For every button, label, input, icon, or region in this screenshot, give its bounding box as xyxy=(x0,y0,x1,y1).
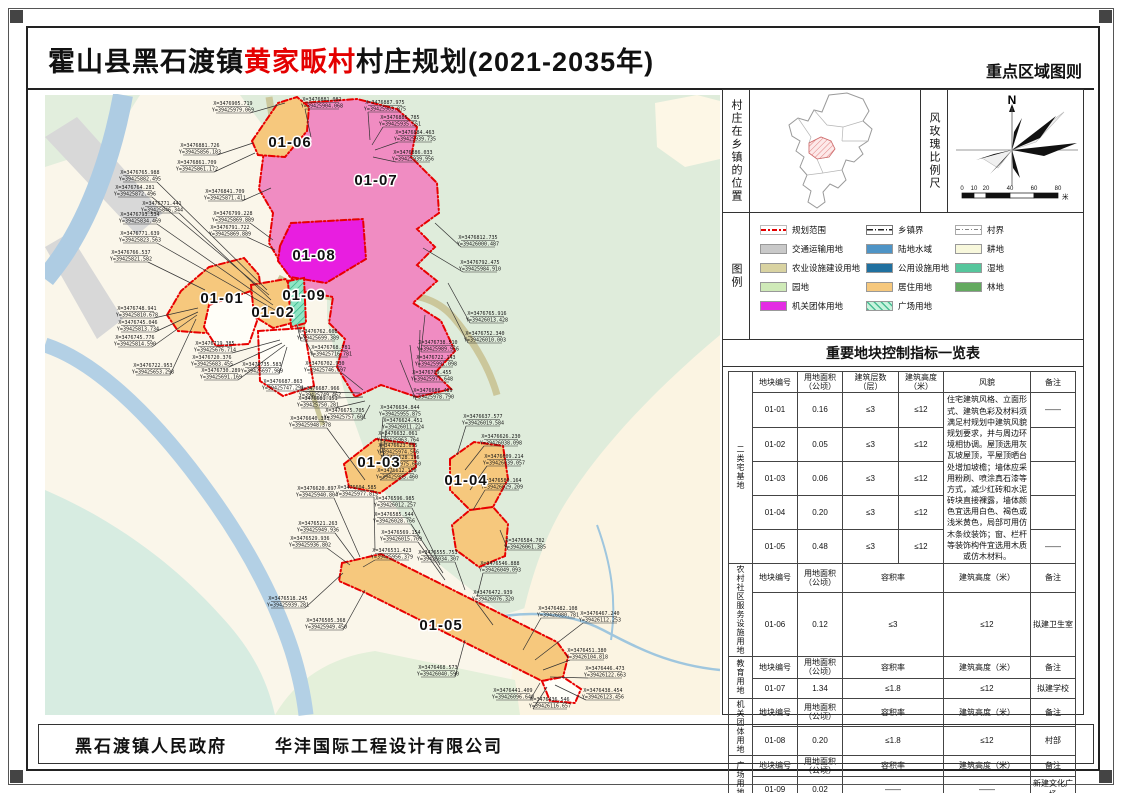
legend-swatch-fill xyxy=(760,244,787,254)
coord-label-x: X=3476518.245 xyxy=(268,596,307,602)
coord-label-y: Y=39426019.584 xyxy=(462,421,504,427)
scale-tick-label: 80 xyxy=(1055,186,1062,192)
legend-label: 湿地 xyxy=(987,262,1004,274)
coord-label-x: X=3476482.108 xyxy=(538,606,577,612)
coord-label-y: Y=39426076.320 xyxy=(472,597,514,603)
legend-label: 农业设施建设用地 xyxy=(792,262,860,274)
column-header: 容积率 xyxy=(843,657,944,678)
legend-item: 林地 xyxy=(955,280,1004,293)
corner-mark xyxy=(1099,770,1112,783)
legend-item: 耕地 xyxy=(955,242,1004,255)
column-header: 用地面积（公顷） xyxy=(798,698,843,727)
coord-label-x: X=3476762.608 xyxy=(298,329,337,335)
column-header: 建筑高度（米） xyxy=(899,372,944,393)
spec-table-title: 重要地块控制指标一览表 xyxy=(723,340,1083,367)
coord-label-x: X=3476585.544 xyxy=(374,512,413,518)
plot-area: 0.05 xyxy=(798,427,843,461)
plot-id: 01-06 xyxy=(753,592,798,656)
coord-label-y: Y=39426038.098 xyxy=(480,441,522,447)
scale-unit-label: 米 xyxy=(1062,192,1069,201)
coord-label-y: Y=39425935.551 xyxy=(379,122,421,128)
legend-label: 机关团体用地 xyxy=(792,300,843,312)
coord-label-y: Y=39426104.818 xyxy=(566,655,608,661)
plot-far: —— xyxy=(843,776,944,793)
coord-label-y: Y=39425949.936 xyxy=(297,528,339,534)
coord-label-x: X=3476472.939 xyxy=(473,590,512,596)
parcel-id-label-01-09: 01-09 xyxy=(282,287,325,304)
column-header: 用地面积（公顷） xyxy=(798,372,843,393)
legend-swatch-fill xyxy=(955,282,982,292)
windrose-figure: N 01020406080米 xyxy=(948,90,1084,212)
legend-label: 规划范围 xyxy=(792,224,826,236)
coord-label-y: Y=39426112.253 xyxy=(579,618,621,624)
coord-label-x: X=3476637.577 xyxy=(463,414,502,420)
coord-label-y: Y=39425989.956 xyxy=(417,347,459,353)
plot-height: ≤12 xyxy=(899,461,944,495)
coord-label-x: X=3476745.776 xyxy=(115,335,154,341)
coord-label-y: Y=39426122.663 xyxy=(584,673,626,679)
coord-label-y: Y=39425869.889 xyxy=(209,232,251,238)
coord-label-x: X=3476768.781 xyxy=(311,345,350,351)
coord-label-y: Y=39426010.003 xyxy=(464,338,506,344)
legend-box: 图例 规划范围交通运输用地农业设施建设用地园地机关团体用地乡镇界陆地水域公用设施… xyxy=(722,212,1084,340)
coord-label-y: Y=39425814.590 xyxy=(114,342,156,348)
column-header: 建筑层数（层） xyxy=(843,372,899,393)
parcel-id-label-01-03: 01-03 xyxy=(357,454,400,471)
plot-floors: ≤3 xyxy=(843,393,899,427)
coord-label-y: Y=39425956.379 xyxy=(371,555,413,561)
footer-block: 黑石渡镇人民政府 华沣国际工程设计有限公司 xyxy=(38,724,1094,764)
coord-label-x: X=3476531.423 xyxy=(372,548,411,554)
scale-tick-label: 40 xyxy=(1007,186,1014,192)
corner-mark xyxy=(10,770,23,783)
plot-note: 拟建学校 xyxy=(1031,678,1076,698)
coord-label-y: Y=39425757.601 xyxy=(324,415,366,421)
coord-label-y: Y=39425821.582 xyxy=(110,257,152,263)
column-header: 风貌 xyxy=(944,372,1031,393)
coord-label-y: Y=39425949.450 xyxy=(305,625,347,631)
scale-bar-segment xyxy=(1034,193,1058,198)
legend-box-label: 图例 xyxy=(723,213,750,339)
plot-note: 拟建卫生室 xyxy=(1031,592,1076,656)
coord-label-y: Y=39425746.697 xyxy=(304,368,346,374)
legend-item: 交通运输用地 xyxy=(760,242,860,255)
coord-label-x: X=3476887.975 xyxy=(365,100,404,106)
plot-area: 0.12 xyxy=(798,592,843,656)
plot-height: ≤12 xyxy=(899,393,944,427)
coord-label-x: X=3476438.454 xyxy=(583,688,622,694)
scale-bar: 01020406080米 xyxy=(960,186,1069,201)
style-guideline: 住宅建筑风格、立面形式、建筑色彩及材料须满足村规划中建筑风貌规划要求，并与周边环… xyxy=(944,393,1031,564)
legend-swatch-line-town xyxy=(866,225,893,235)
coord-label-y: Y=39425955.875 xyxy=(379,412,421,418)
parcel-id-label-01-08: 01-08 xyxy=(292,247,335,264)
group-label: 教育用地 xyxy=(729,657,753,698)
coord-label-y: Y=39425991.098 xyxy=(415,362,457,368)
coord-label-x: X=3476505.368 xyxy=(306,618,345,624)
legend-column: 规划范围交通运输用地农业设施建设用地园地机关团体用地 xyxy=(760,223,860,335)
scale-bar-segment xyxy=(986,193,1010,198)
location-box-label: 村庄在乡镇的位置 xyxy=(723,90,750,212)
coord-label-x: X=3476687.863 xyxy=(263,379,302,385)
coord-label-x: X=3476765.916 xyxy=(467,311,506,317)
coord-label-y: Y=39425936.802 xyxy=(289,543,331,549)
corner-mark xyxy=(1099,10,1112,23)
coord-label-x: X=3476709.455 xyxy=(412,370,451,376)
legend-label: 交通运输用地 xyxy=(792,243,843,255)
plot-far: ≤3 xyxy=(843,592,944,656)
coord-label-x: X=3476771.441 xyxy=(142,201,181,207)
coord-label-x: X=3476765.988 xyxy=(120,170,159,176)
coord-label-y: Y=39425984.910 xyxy=(459,267,501,273)
plot-area: 0.16 xyxy=(798,393,843,427)
coord-label-y: Y=39425977.819 xyxy=(336,492,378,498)
coord-label-y: Y=39426049.093 xyxy=(479,568,521,574)
coord-label-x: X=3476702.930 xyxy=(305,361,344,367)
page-title: 霍山县黑石渡镇黄家畈村村庄规划(2021-2035年) xyxy=(48,40,654,79)
legend-label: 居住用地 xyxy=(898,281,932,293)
coord-label-x: X=3476885.785 xyxy=(380,115,419,121)
plot-id: 01-02 xyxy=(753,427,798,461)
plot-height: ≤12 xyxy=(944,678,1031,698)
windrose-petal xyxy=(1012,150,1020,178)
windrose-box-label: 风玫瑰比例尺 xyxy=(920,90,947,212)
plot-note: —— xyxy=(1031,393,1076,427)
coord-label-y: Y=39425978.790 xyxy=(412,395,454,401)
coord-label-x: X=3476791.722 xyxy=(210,225,249,231)
coord-label-y: Y=39426015.709 xyxy=(380,537,422,543)
legend-swatch-fill xyxy=(866,282,893,292)
plot-area: 0.48 xyxy=(798,530,843,564)
coord-label-y: Y=39426011.224 xyxy=(382,425,424,431)
coord-label-x: X=3476730.289 xyxy=(201,368,240,374)
coord-label-y: Y=39426123.456 xyxy=(582,695,624,701)
coord-label-y: Y=39426000.487 xyxy=(457,242,499,248)
coord-label-y: Y=39425699.389 xyxy=(297,336,339,342)
side-panel: 村庄在乡镇的位置 风玫瑰比例尺 N xyxy=(722,90,1084,715)
coord-label-x: X=3476722.953 xyxy=(133,363,172,369)
column-header: 建筑高度（米） xyxy=(944,698,1031,727)
coord-label-x: X=3476793.534 xyxy=(120,212,159,218)
windrose: N 01020406080米 xyxy=(947,90,1083,212)
legend-column: 乡镇界陆地水域公用设施用地居住用地广场用地 xyxy=(866,223,949,335)
coord-label-x: X=3476468.573 xyxy=(418,665,457,671)
plot-far: ≤1.8 xyxy=(843,678,944,698)
plot-height: ≤12 xyxy=(899,530,944,564)
coord-label-y: Y=39425979.069 xyxy=(212,108,254,114)
coord-label-y: Y=39425676.714 xyxy=(194,348,236,354)
legend-label: 陆地水域 xyxy=(898,243,932,255)
column-header: 地块编号 xyxy=(753,564,798,593)
coord-label-y: Y=39426096.640 xyxy=(492,695,534,701)
plot-area: 1.34 xyxy=(798,678,843,698)
coord-label-y: Y=39425861.172 xyxy=(176,167,218,173)
coord-label-y: Y=39426013.428 xyxy=(466,318,508,324)
coord-label-x: X=3476681.151 xyxy=(298,396,337,402)
title-block: 霍山县黑石渡镇黄家畈村村庄规划(2021-2035年) 重点区域图则 xyxy=(28,28,1094,90)
plot-id: 01-04 xyxy=(753,495,798,529)
coord-label-y: Y=39425871.411 xyxy=(204,196,246,202)
parcel-id-label-01-06: 01-06 xyxy=(268,134,311,151)
parcel-id-label-01-01: 01-01 xyxy=(200,290,243,307)
legend-item: 陆地水域 xyxy=(866,242,949,255)
coord-label-x: X=3476623.695 xyxy=(378,443,417,449)
coord-label-y: Y=39425691.169 xyxy=(200,375,242,381)
windrose-petal-outline xyxy=(982,150,1012,168)
legend-item: 农业设施建设用地 xyxy=(760,261,860,274)
coord-label-x: X=3476589.164 xyxy=(482,478,521,484)
coord-label-x: X=3476792.475 xyxy=(460,260,499,266)
coord-label-y: Y=39426039.057 xyxy=(483,461,525,467)
scale-tick-label: 10 xyxy=(971,186,978,192)
legend-label: 乡镇界 xyxy=(898,224,924,236)
column-header: 容积率 xyxy=(843,564,944,593)
sheet-type-label: 重点区域图则 xyxy=(986,58,1082,82)
coord-label-x: X=3476766.537 xyxy=(111,250,150,256)
legend-swatch-fill xyxy=(866,263,893,273)
coord-label-y: Y=39425948.378 xyxy=(289,423,331,429)
parcel-id-label-01-02: 01-02 xyxy=(251,304,294,321)
coord-label-x: X=3476634.844 xyxy=(380,405,419,411)
coord-label-y: Y=39425810.678 xyxy=(116,313,158,319)
legend-label: 林地 xyxy=(987,281,1004,293)
legend-item: 园地 xyxy=(760,280,860,293)
legend-swatch-fill xyxy=(760,263,787,273)
coord-label-y: Y=39425823.563 xyxy=(119,238,161,244)
coord-label-x: X=3476626.230 xyxy=(481,434,520,440)
coord-label-x: X=3476841.709 xyxy=(205,189,244,195)
coord-label-y: Y=39426012.257 xyxy=(374,503,416,509)
plot-id: 01-03 xyxy=(753,461,798,495)
column-header: 地块编号 xyxy=(753,698,798,727)
coord-label-x: X=3476584.702 xyxy=(505,538,544,544)
coord-label-y: Y=39425939.735 xyxy=(394,137,436,143)
coord-label-y: Y=39426034.307 xyxy=(417,557,459,563)
coord-label-x: X=3476441.409 xyxy=(493,688,532,694)
coord-label-y: Y=39426040.590 xyxy=(417,672,459,678)
spec-table-box: 重要地块控制指标一览表 二类宅基地地块编号用地面积（公顷）建筑层数（层）建筑高度… xyxy=(722,339,1084,715)
scale-tick-label: 20 xyxy=(983,186,990,192)
coord-label-y: Y=39425747.291 xyxy=(262,386,304,392)
plot-height: ≤12 xyxy=(899,427,944,461)
coord-label-x: X=3476861.709 xyxy=(177,160,216,166)
legend-item: 居住用地 xyxy=(866,280,949,293)
coord-label-y: Y=39425716.781 xyxy=(310,352,352,358)
coord-label-x: X=3476745.046 xyxy=(118,320,157,326)
column-header: 备注 xyxy=(1031,698,1076,727)
coord-label-y: Y=39425882.495 xyxy=(119,177,161,183)
plot-id: 01-07 xyxy=(753,678,798,698)
coord-label-x: X=3476764.281 xyxy=(115,185,154,191)
government-name: 黑石渡镇人民政府 xyxy=(75,732,227,757)
township-inset-map xyxy=(750,90,920,212)
coord-label-x: X=3476720.376 xyxy=(192,355,231,361)
coord-label-x: X=3476521.263 xyxy=(298,521,337,527)
coord-label-y: Y=39426080.781 xyxy=(537,613,579,619)
coord-label-x: X=3476555.753 xyxy=(418,550,457,556)
column-header: 地块编号 xyxy=(753,657,798,678)
plot-id: 01-01 xyxy=(753,393,798,427)
column-header: 地块编号 xyxy=(753,372,798,393)
coord-label-x: X=3476686.489 xyxy=(413,388,452,394)
scale-bar-segment xyxy=(974,193,986,198)
legend-label: 广场用地 xyxy=(898,300,932,312)
plot-floors: ≤3 xyxy=(843,530,899,564)
coord-label-x: X=3476884.463 xyxy=(395,130,434,136)
legend-label: 耕地 xyxy=(987,243,1004,255)
coord-label-x: X=3476546.888 xyxy=(480,561,519,567)
plot-floors: ≤3 xyxy=(843,427,899,461)
coord-label-x: X=3476446.473 xyxy=(585,666,624,672)
parcel-id-label-01-07: 01-07 xyxy=(354,172,397,189)
scale-bar-segment xyxy=(962,193,974,198)
coord-label-x: X=3476752.340 xyxy=(465,331,504,337)
legend-item: 村界 xyxy=(955,223,1004,236)
coord-label-y: Y=39425813.734 xyxy=(117,327,159,333)
plot-id: 01-05 xyxy=(753,530,798,564)
legend-item: 乡镇界 xyxy=(866,223,949,236)
coord-label-x: X=3476436.546 xyxy=(530,697,569,703)
village-name: 黄家畈村 xyxy=(244,47,356,77)
coord-label-y: Y=39425940.804 xyxy=(296,493,338,499)
corner-mark xyxy=(10,10,23,23)
column-header: 容积率 xyxy=(843,698,944,727)
coord-label-y: Y=39425697.989 xyxy=(241,369,283,375)
plot-id: 01-09 xyxy=(753,776,798,793)
coord-label-x: X=3476624.451 xyxy=(383,418,422,424)
coord-label-y: Y=39425939.956 xyxy=(392,157,434,163)
coord-label-x: X=3476722.143 xyxy=(416,355,455,361)
scale-bar-segment xyxy=(1010,193,1034,198)
plot-floors: ≤3 xyxy=(843,495,899,529)
coord-label-y: Y=39426116.657 xyxy=(529,704,571,710)
coord-label-x: X=3476632.061 xyxy=(378,431,417,437)
coord-label-y: Y=39425856.183 xyxy=(179,150,221,156)
coord-label-x: X=3476604.585 xyxy=(337,485,376,491)
legend-item: 机关团体用地 xyxy=(760,299,860,312)
parcel-id-label-01-05: 01-05 xyxy=(419,617,462,634)
coord-label-x: X=3476569.154 xyxy=(381,530,420,536)
coord-label-y: Y=39425939.281 xyxy=(267,603,309,609)
coord-label-x: X=3476640.395 xyxy=(290,416,329,422)
coord-label-x: X=3476675.705 xyxy=(325,408,364,414)
plan-sheet: 霍山县黑石渡镇黄家畈村村庄规划(2021-2035年) 重点区域图则 xyxy=(0,0,1122,793)
legend-swatch-fill xyxy=(760,301,787,311)
legend-swatch-line-village xyxy=(955,225,982,235)
plot-note: 新建文化广场 xyxy=(1031,776,1076,793)
coord-label-y: Y=39425653.298 xyxy=(132,370,174,376)
coord-label-x: X=3476771.639 xyxy=(120,231,159,237)
legend-item: 公用设施用地 xyxy=(866,261,949,274)
coord-label-x: X=3476609.214 xyxy=(484,454,523,460)
coord-label-y: Y=39425872.496 xyxy=(114,192,156,198)
coord-label-y: Y=39425904.068 xyxy=(301,104,343,110)
legend-label: 公用设施用地 xyxy=(898,262,949,274)
plot-note xyxy=(1031,461,1076,495)
coord-label-x: X=3476812.735 xyxy=(458,235,497,241)
coord-label-y: Y=39425683.455 xyxy=(191,362,233,368)
plot-height: ≤12 xyxy=(899,495,944,529)
legend-label: 园地 xyxy=(792,281,809,293)
legend-swatch-fill xyxy=(955,244,982,254)
legend-swatch-fill xyxy=(866,244,893,254)
coord-label-x: X=3476881.726 xyxy=(180,143,219,149)
plot-height: ≤12 xyxy=(944,592,1031,656)
coord-label-x: X=3476620.897 xyxy=(297,486,336,492)
plot-area: 0.20 xyxy=(798,495,843,529)
plot-height: —— xyxy=(944,776,1031,793)
legend-swatch-line-red xyxy=(760,225,787,235)
group-label: 农村社区服务设施用地 xyxy=(729,564,753,657)
column-header: 建筑高度（米） xyxy=(944,657,1031,678)
parcel-id-label-01-04: 01-04 xyxy=(444,472,487,489)
location-box: 村庄在乡镇的位置 风玫瑰比例尺 N xyxy=(722,89,1084,213)
coord-label-x: X=3476451.380 xyxy=(567,648,606,654)
legend-swatch-hatch xyxy=(866,301,893,311)
coord-label-y: Y=39426028.766 xyxy=(373,519,415,525)
column-header: 用地面积（公顷） xyxy=(798,564,843,593)
coord-label-y: Y=39425869.889 xyxy=(212,218,254,224)
design-company-name: 华沣国际工程设计有限公司 xyxy=(275,732,503,757)
township-outline xyxy=(751,91,919,211)
column-header: 用地面积（公顷） xyxy=(798,657,843,678)
coord-label-x: X=3476799.228 xyxy=(213,211,252,217)
plot-note: —— xyxy=(1031,530,1076,564)
group-label: 二类宅基地 xyxy=(729,372,753,564)
plot-area: 0.02 xyxy=(798,776,843,793)
coord-label-y: Y=39425903.875 xyxy=(364,107,406,113)
plot-note xyxy=(1031,495,1076,529)
coord-label-x: X=3476886.033 xyxy=(393,150,432,156)
legend-swatch-fill xyxy=(955,263,982,273)
coord-label-x: X=3476467.240 xyxy=(580,611,619,617)
coord-label-y: Y=39425977.648 xyxy=(411,377,453,383)
coord-label-x: X=3476735.583 xyxy=(242,362,281,368)
coord-label-x: X=3476881.082 xyxy=(302,97,341,103)
map-canvas: X=3476905.719Y=39425979.069X=3476881.726… xyxy=(45,94,720,716)
legend-item: 规划范围 xyxy=(760,223,860,236)
coord-label-x: X=3476748.941 xyxy=(117,306,156,312)
plot-floors: ≤3 xyxy=(843,461,899,495)
scale-tick-label: 0 xyxy=(960,186,964,192)
column-header: 备注 xyxy=(1031,372,1076,393)
legend-item: 广场用地 xyxy=(866,299,949,312)
coord-label-x: X=3476687.966 xyxy=(300,386,339,392)
coord-label-x: X=3476719.385 xyxy=(195,341,234,347)
coord-label-x: X=3476738.510 xyxy=(418,340,457,346)
coord-label-x: X=3476905.719 xyxy=(213,101,252,107)
plot-area: 0.06 xyxy=(798,461,843,495)
coord-label-x: X=3476596.985 xyxy=(375,496,414,502)
plot-note xyxy=(1031,427,1076,461)
column-header: 备注 xyxy=(1031,657,1076,678)
column-header: 建筑高度（米） xyxy=(944,564,1031,593)
coord-label-y: Y=39425834.469 xyxy=(119,219,161,225)
legend-column: 村界耕地湿地林地 xyxy=(955,223,1004,335)
scale-tick-label: 60 xyxy=(1031,186,1038,192)
legend-item: 湿地 xyxy=(955,261,1004,274)
legend-swatch-fill xyxy=(760,282,787,292)
coord-label-y: Y=39425985.460 xyxy=(376,475,418,481)
coord-label-y: Y=39426061.385 xyxy=(504,545,546,551)
coord-label-x: X=3476529.936 xyxy=(290,536,329,542)
column-header: 备注 xyxy=(1031,564,1076,593)
legend-label: 村界 xyxy=(987,224,1004,236)
planning-map: X=3476905.719Y=39425979.069X=3476881.726… xyxy=(45,94,720,716)
legend-items: 规划范围交通运输用地农业设施建设用地园地机关团体用地乡镇界陆地水域公用设施用地居… xyxy=(750,213,1083,339)
